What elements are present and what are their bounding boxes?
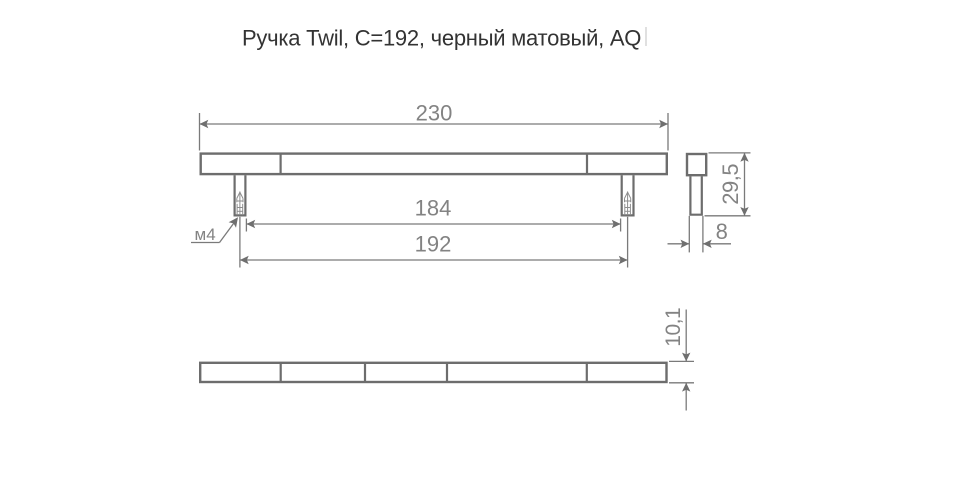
svg-text:8: 8 (716, 219, 728, 244)
svg-text:10,1: 10,1 (662, 308, 685, 347)
svg-text:м4: м4 (195, 225, 216, 244)
svg-text:29,5: 29,5 (718, 164, 743, 205)
svg-text:230: 230 (416, 101, 453, 126)
svg-text:192: 192 (415, 232, 452, 257)
svg-text:Ручка Twil, C=192, черный мато: Ручка Twil, C=192, черный матовый, AQ (242, 26, 641, 51)
svg-text:184: 184 (415, 196, 452, 221)
